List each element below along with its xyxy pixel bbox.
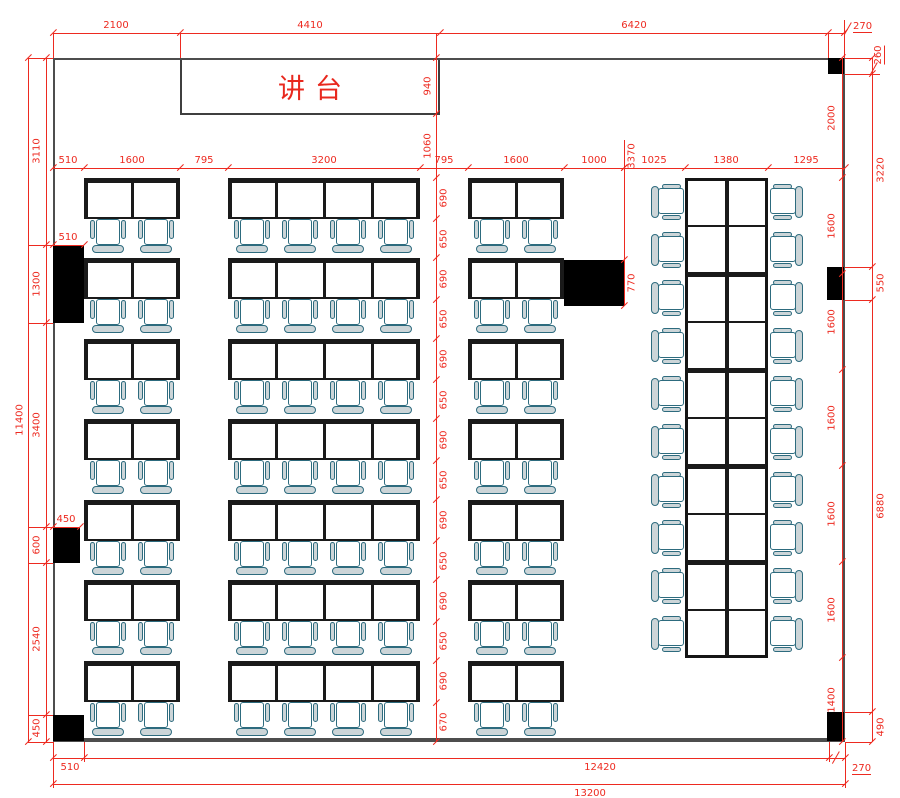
desk-divider	[515, 504, 518, 539]
chair-armrest	[169, 542, 174, 561]
dim-line	[845, 267, 872, 268]
desk-divider	[131, 665, 134, 700]
chair-armrest	[378, 220, 383, 239]
chair-armrest	[234, 542, 239, 561]
chair-backrest	[140, 406, 172, 414]
chair-armrest	[121, 461, 126, 480]
dim-line	[845, 58, 872, 59]
desk-divider	[687, 321, 766, 324]
dim-label: 450	[56, 514, 75, 525]
chair-armrest	[378, 542, 383, 561]
chair-armrest	[90, 381, 95, 400]
dim-line	[844, 20, 845, 58]
chair-armrest	[773, 551, 792, 556]
chair-armrest	[378, 381, 383, 400]
chair-armrest	[121, 622, 126, 641]
chair-seat	[240, 621, 264, 647]
chair-armrest	[330, 703, 335, 722]
desk-divider	[371, 584, 374, 619]
chair-seat	[240, 219, 264, 245]
dim-line	[28, 715, 53, 716]
chair-backrest	[140, 567, 172, 575]
dim-label: 3370	[627, 143, 638, 168]
chair-backrest	[92, 245, 124, 253]
floor-plan-canvas: 讲台 2100441064205101600795320079516001000…	[0, 0, 900, 798]
chair-backrest	[651, 570, 659, 602]
chair-armrest	[662, 263, 681, 268]
desk-divider	[131, 504, 134, 539]
chair-armrest	[282, 622, 287, 641]
chair-armrest	[409, 622, 414, 641]
dim-label: 550	[876, 273, 887, 292]
desk-divider	[371, 504, 374, 539]
chair-seat	[96, 380, 120, 406]
chair-backrest	[92, 647, 124, 655]
chair-backrest	[284, 486, 316, 494]
dim-line	[845, 712, 872, 713]
chair-seat	[658, 188, 684, 214]
chair-armrest	[330, 542, 335, 561]
chair-backrest	[795, 378, 803, 410]
dim-label: 11400	[15, 404, 26, 436]
chair-seat	[658, 428, 684, 454]
dim-line	[53, 168, 845, 169]
dim-line	[829, 742, 830, 762]
dim-line	[46, 58, 47, 742]
chair-armrest	[505, 300, 510, 319]
chair-seat	[770, 284, 796, 310]
chair-seat	[770, 332, 796, 358]
dim-label: 270	[852, 763, 871, 775]
chair-backrest	[284, 245, 316, 253]
chair-armrest	[265, 220, 270, 239]
chair-backrest	[795, 282, 803, 314]
dim-label: 4410	[297, 20, 322, 31]
chair-seat	[480, 702, 504, 728]
dim-label: 13200	[574, 788, 606, 798]
chair-armrest	[409, 381, 414, 400]
chair-backrest	[524, 245, 556, 253]
chair-backrest	[236, 406, 268, 414]
chair-armrest	[330, 300, 335, 319]
chair-backrest	[524, 567, 556, 575]
chair-seat	[658, 572, 684, 598]
chair-backrest	[284, 567, 316, 575]
chair-backrest	[92, 728, 124, 736]
chair-armrest	[361, 703, 366, 722]
chair-armrest	[121, 703, 126, 722]
dim-label: 3220	[876, 157, 887, 182]
desk-divider	[515, 182, 518, 217]
dim-label: 690	[439, 671, 450, 690]
chair-seat	[336, 380, 360, 406]
chair-seat	[658, 620, 684, 646]
dim-label: 1295	[793, 155, 818, 166]
chair-backrest	[651, 618, 659, 650]
chair-armrest	[773, 311, 792, 316]
chair-backrest	[795, 474, 803, 506]
chair-armrest	[662, 455, 681, 460]
chair-armrest	[773, 263, 792, 268]
chair-seat	[144, 219, 168, 245]
chair-armrest	[282, 300, 287, 319]
chair-backrest	[651, 378, 659, 410]
dim-label: 690	[439, 591, 450, 610]
dim-line	[84, 742, 85, 762]
chair-seat	[658, 332, 684, 358]
chair-armrest	[265, 461, 270, 480]
chair-armrest	[773, 599, 792, 604]
chair-seat	[528, 541, 552, 567]
chair-armrest	[169, 381, 174, 400]
chair-armrest	[265, 703, 270, 722]
chair-armrest	[90, 461, 95, 480]
desk-divider	[323, 262, 326, 297]
dim-label: 1025	[641, 155, 666, 166]
dim-label: 3400	[32, 412, 43, 437]
chair-backrest	[524, 728, 556, 736]
chair-armrest	[662, 551, 681, 556]
desk-divider	[687, 368, 766, 373]
chair-armrest	[265, 542, 270, 561]
chair-seat	[144, 380, 168, 406]
chair-armrest	[553, 300, 558, 319]
chair-seat	[658, 476, 684, 502]
desk-divider	[131, 182, 134, 217]
chair-armrest	[313, 381, 318, 400]
chair-seat	[288, 541, 312, 567]
dim-label: 6420	[621, 20, 646, 31]
chair-backrest	[524, 486, 556, 494]
chair-armrest	[169, 300, 174, 319]
chair-armrest	[522, 542, 527, 561]
chair-armrest	[330, 461, 335, 480]
chair-armrest	[409, 703, 414, 722]
dim-label: 510	[60, 762, 79, 773]
desk-divider	[371, 665, 374, 700]
chair-armrest	[234, 300, 239, 319]
chair-backrest	[332, 728, 364, 736]
chair-backrest	[476, 647, 508, 655]
chair-armrest	[282, 703, 287, 722]
chair-armrest	[265, 381, 270, 400]
dim-label: 6880	[876, 493, 887, 518]
chair-seat	[770, 620, 796, 646]
chair-seat	[336, 299, 360, 325]
chair-armrest	[361, 622, 366, 641]
chair-backrest	[651, 426, 659, 458]
chair-seat	[96, 621, 120, 647]
chair-seat	[384, 621, 408, 647]
chair-backrest	[476, 406, 508, 414]
wall-block	[53, 715, 84, 741]
dim-label: 1600	[119, 155, 144, 166]
dim-line	[53, 758, 845, 759]
chair-seat	[384, 702, 408, 728]
dim-label: 2540	[32, 626, 43, 651]
desk-divider	[687, 272, 766, 277]
desk-divider	[275, 584, 278, 619]
wall-block	[53, 527, 80, 563]
chair-backrest	[284, 406, 316, 414]
dim-line	[845, 742, 872, 743]
chair-armrest	[90, 703, 95, 722]
desk-divider	[323, 182, 326, 217]
chair-backrest	[92, 486, 124, 494]
dim-line	[28, 563, 53, 564]
chair-seat	[480, 460, 504, 486]
wall-block	[564, 260, 624, 306]
desk-divider	[275, 262, 278, 297]
chair-armrest	[330, 220, 335, 239]
chair-armrest	[90, 300, 95, 319]
chair-backrest	[651, 186, 659, 218]
desk-divider	[131, 584, 134, 619]
desk-divider	[131, 262, 134, 297]
desk-divider	[687, 225, 766, 228]
chair-armrest	[662, 359, 681, 364]
desk-divider	[131, 343, 134, 378]
chair-armrest	[138, 622, 143, 641]
chair-armrest	[138, 461, 143, 480]
chair-seat	[288, 460, 312, 486]
chair-armrest	[121, 381, 126, 400]
chair-backrest	[140, 325, 172, 333]
chair-seat	[240, 460, 264, 486]
desk-divider	[371, 423, 374, 458]
chair-armrest	[378, 622, 383, 641]
dim-label: 690	[439, 188, 450, 207]
chair-seat	[288, 219, 312, 245]
dim-line	[53, 245, 84, 246]
dim-line	[28, 742, 53, 743]
chair-seat	[480, 299, 504, 325]
chair-seat	[336, 219, 360, 245]
chair-seat	[480, 219, 504, 245]
chair-armrest	[474, 703, 479, 722]
chair-backrest	[380, 728, 412, 736]
chair-armrest	[282, 381, 287, 400]
desk-divider	[275, 343, 278, 378]
chair-backrest	[332, 647, 364, 655]
desk-divider	[687, 464, 766, 469]
desk-divider	[323, 504, 326, 539]
chair-backrest	[476, 728, 508, 736]
chair-armrest	[138, 300, 143, 319]
chair-armrest	[662, 215, 681, 220]
dim-line	[28, 527, 53, 528]
dim-label: 1380	[713, 155, 738, 166]
chair-backrest	[236, 567, 268, 575]
chair-armrest	[361, 381, 366, 400]
chair-armrest	[90, 542, 95, 561]
chair-backrest	[476, 245, 508, 253]
chair-armrest	[234, 461, 239, 480]
chair-armrest	[522, 220, 527, 239]
chair-armrest	[522, 703, 527, 722]
chair-armrest	[234, 622, 239, 641]
chair-seat	[240, 702, 264, 728]
dim-label: 1060	[423, 133, 434, 158]
dim-label: 690	[439, 430, 450, 449]
chair-armrest	[409, 461, 414, 480]
dim-line	[53, 784, 845, 785]
chair-seat	[288, 380, 312, 406]
chair-seat	[288, 621, 312, 647]
chair-seat	[480, 621, 504, 647]
desk-divider	[275, 665, 278, 700]
chair-armrest	[234, 703, 239, 722]
chair-armrest	[121, 300, 126, 319]
desk-divider	[323, 584, 326, 619]
chair-seat	[658, 236, 684, 262]
dim-label: 600	[32, 535, 43, 554]
chair-armrest	[474, 381, 479, 400]
chair-backrest	[92, 567, 124, 575]
dim-label: 490	[876, 717, 887, 736]
dim-label: 1600	[503, 155, 528, 166]
chair-backrest	[140, 728, 172, 736]
chair-armrest	[505, 220, 510, 239]
chair-backrest	[284, 647, 316, 655]
desk-divider	[687, 560, 766, 565]
desk-divider	[515, 665, 518, 700]
chair-seat	[144, 621, 168, 647]
dim-label: 795	[434, 155, 453, 166]
dim-label: 3200	[311, 155, 336, 166]
chair-seat	[528, 380, 552, 406]
chair-armrest	[409, 542, 414, 561]
chair-backrest	[795, 426, 803, 458]
chair-armrest	[361, 300, 366, 319]
desk-divider	[323, 343, 326, 378]
chair-armrest	[553, 220, 558, 239]
dim-label: 270	[853, 21, 872, 33]
chair-backrest	[524, 325, 556, 333]
dim-line	[828, 33, 829, 58]
dim-line	[28, 323, 53, 324]
chair-armrest	[522, 622, 527, 641]
chair-seat	[658, 380, 684, 406]
dim-label: 770	[627, 273, 638, 292]
chair-backrest	[92, 325, 124, 333]
chair-armrest	[522, 381, 527, 400]
chair-backrest	[524, 647, 556, 655]
chair-seat	[240, 380, 264, 406]
podium-label: 讲台	[268, 67, 352, 106]
chair-backrest	[795, 234, 803, 266]
chair-armrest	[662, 647, 681, 652]
chair-backrest	[524, 406, 556, 414]
dim-line	[28, 245, 53, 246]
dim-label: 450	[32, 718, 43, 737]
dim-label: 1000	[581, 155, 606, 166]
chair-armrest	[169, 461, 174, 480]
chair-backrest	[795, 186, 803, 218]
dim-line	[845, 300, 872, 301]
chair-armrest	[282, 542, 287, 561]
dim-label: 1300	[32, 271, 43, 296]
dim-line	[28, 58, 29, 742]
chair-armrest	[234, 381, 239, 400]
chair-armrest	[265, 300, 270, 319]
dim-line	[53, 742, 54, 788]
dim-line	[436, 33, 437, 742]
chair-armrest	[169, 220, 174, 239]
desk-divider	[275, 504, 278, 539]
dim-label: 2100	[103, 20, 128, 31]
chair-backrest	[476, 567, 508, 575]
dim-label: 1400	[827, 687, 838, 712]
chair-seat	[336, 702, 360, 728]
chair-armrest	[522, 300, 527, 319]
dim-label: 940	[423, 76, 434, 95]
dim-label: 1600	[827, 501, 838, 526]
chair-backrest	[236, 647, 268, 655]
desk-divider	[687, 417, 766, 420]
chair-seat	[96, 702, 120, 728]
chair-backrest	[92, 406, 124, 414]
chair-seat	[770, 476, 796, 502]
chair-armrest	[313, 300, 318, 319]
chair-seat	[480, 380, 504, 406]
chair-backrest	[380, 406, 412, 414]
chair-armrest	[522, 461, 527, 480]
dim-label: 12420	[584, 762, 616, 773]
chair-backrest	[651, 330, 659, 362]
dim-label: 260	[873, 45, 885, 64]
dim-label: 650	[439, 470, 450, 489]
chair-backrest	[332, 325, 364, 333]
chair-armrest	[265, 622, 270, 641]
chair-armrest	[313, 703, 318, 722]
chair-armrest	[474, 300, 479, 319]
dim-line	[872, 58, 873, 742]
chair-armrest	[378, 703, 383, 722]
chair-backrest	[651, 282, 659, 314]
chair-backrest	[380, 245, 412, 253]
chair-backrest	[140, 486, 172, 494]
desk-divider	[323, 423, 326, 458]
chair-armrest	[773, 215, 792, 220]
dim-label: 510	[58, 155, 77, 166]
chair-armrest	[474, 622, 479, 641]
chair-seat	[384, 299, 408, 325]
chair-armrest	[313, 461, 318, 480]
chair-armrest	[662, 407, 681, 412]
chair-armrest	[553, 381, 558, 400]
chair-seat	[528, 621, 552, 647]
chair-armrest	[361, 542, 366, 561]
chair-backrest	[236, 245, 268, 253]
chair-seat	[384, 460, 408, 486]
dim-label: 1600	[827, 309, 838, 334]
chair-backrest	[380, 486, 412, 494]
desk-divider	[515, 343, 518, 378]
chair-armrest	[378, 300, 383, 319]
chair-seat	[144, 702, 168, 728]
chair-armrest	[282, 220, 287, 239]
chair-armrest	[313, 622, 318, 641]
chair-seat	[770, 428, 796, 454]
chair-backrest	[476, 486, 508, 494]
chair-seat	[144, 460, 168, 486]
chair-armrest	[773, 407, 792, 412]
chair-backrest	[332, 245, 364, 253]
chair-seat	[528, 219, 552, 245]
chair-armrest	[138, 381, 143, 400]
chair-seat	[144, 541, 168, 567]
